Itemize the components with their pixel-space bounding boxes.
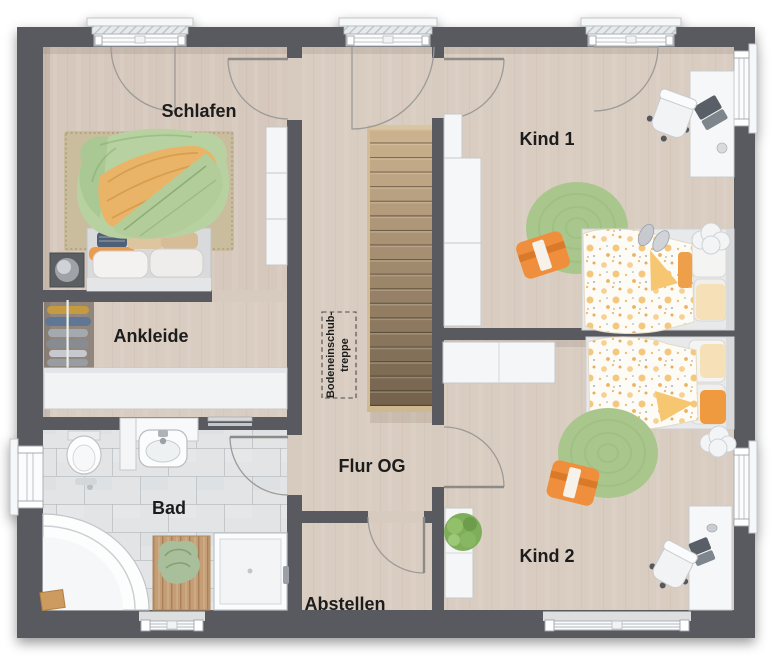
svg-text:Flur OG: Flur OG — [339, 456, 406, 476]
svg-text:Kind 2: Kind 2 — [519, 546, 574, 566]
svg-text:Schlafen: Schlafen — [161, 101, 236, 121]
svg-text:Bodeneinschub-: Bodeneinschub- — [325, 312, 337, 399]
svg-text:Bad: Bad — [152, 498, 186, 518]
svg-text:Kind 1: Kind 1 — [519, 129, 574, 149]
svg-text:Ankleide: Ankleide — [113, 326, 188, 346]
svg-text:Abstellen: Abstellen — [304, 594, 385, 614]
svg-text:treppe: treppe — [339, 338, 351, 372]
